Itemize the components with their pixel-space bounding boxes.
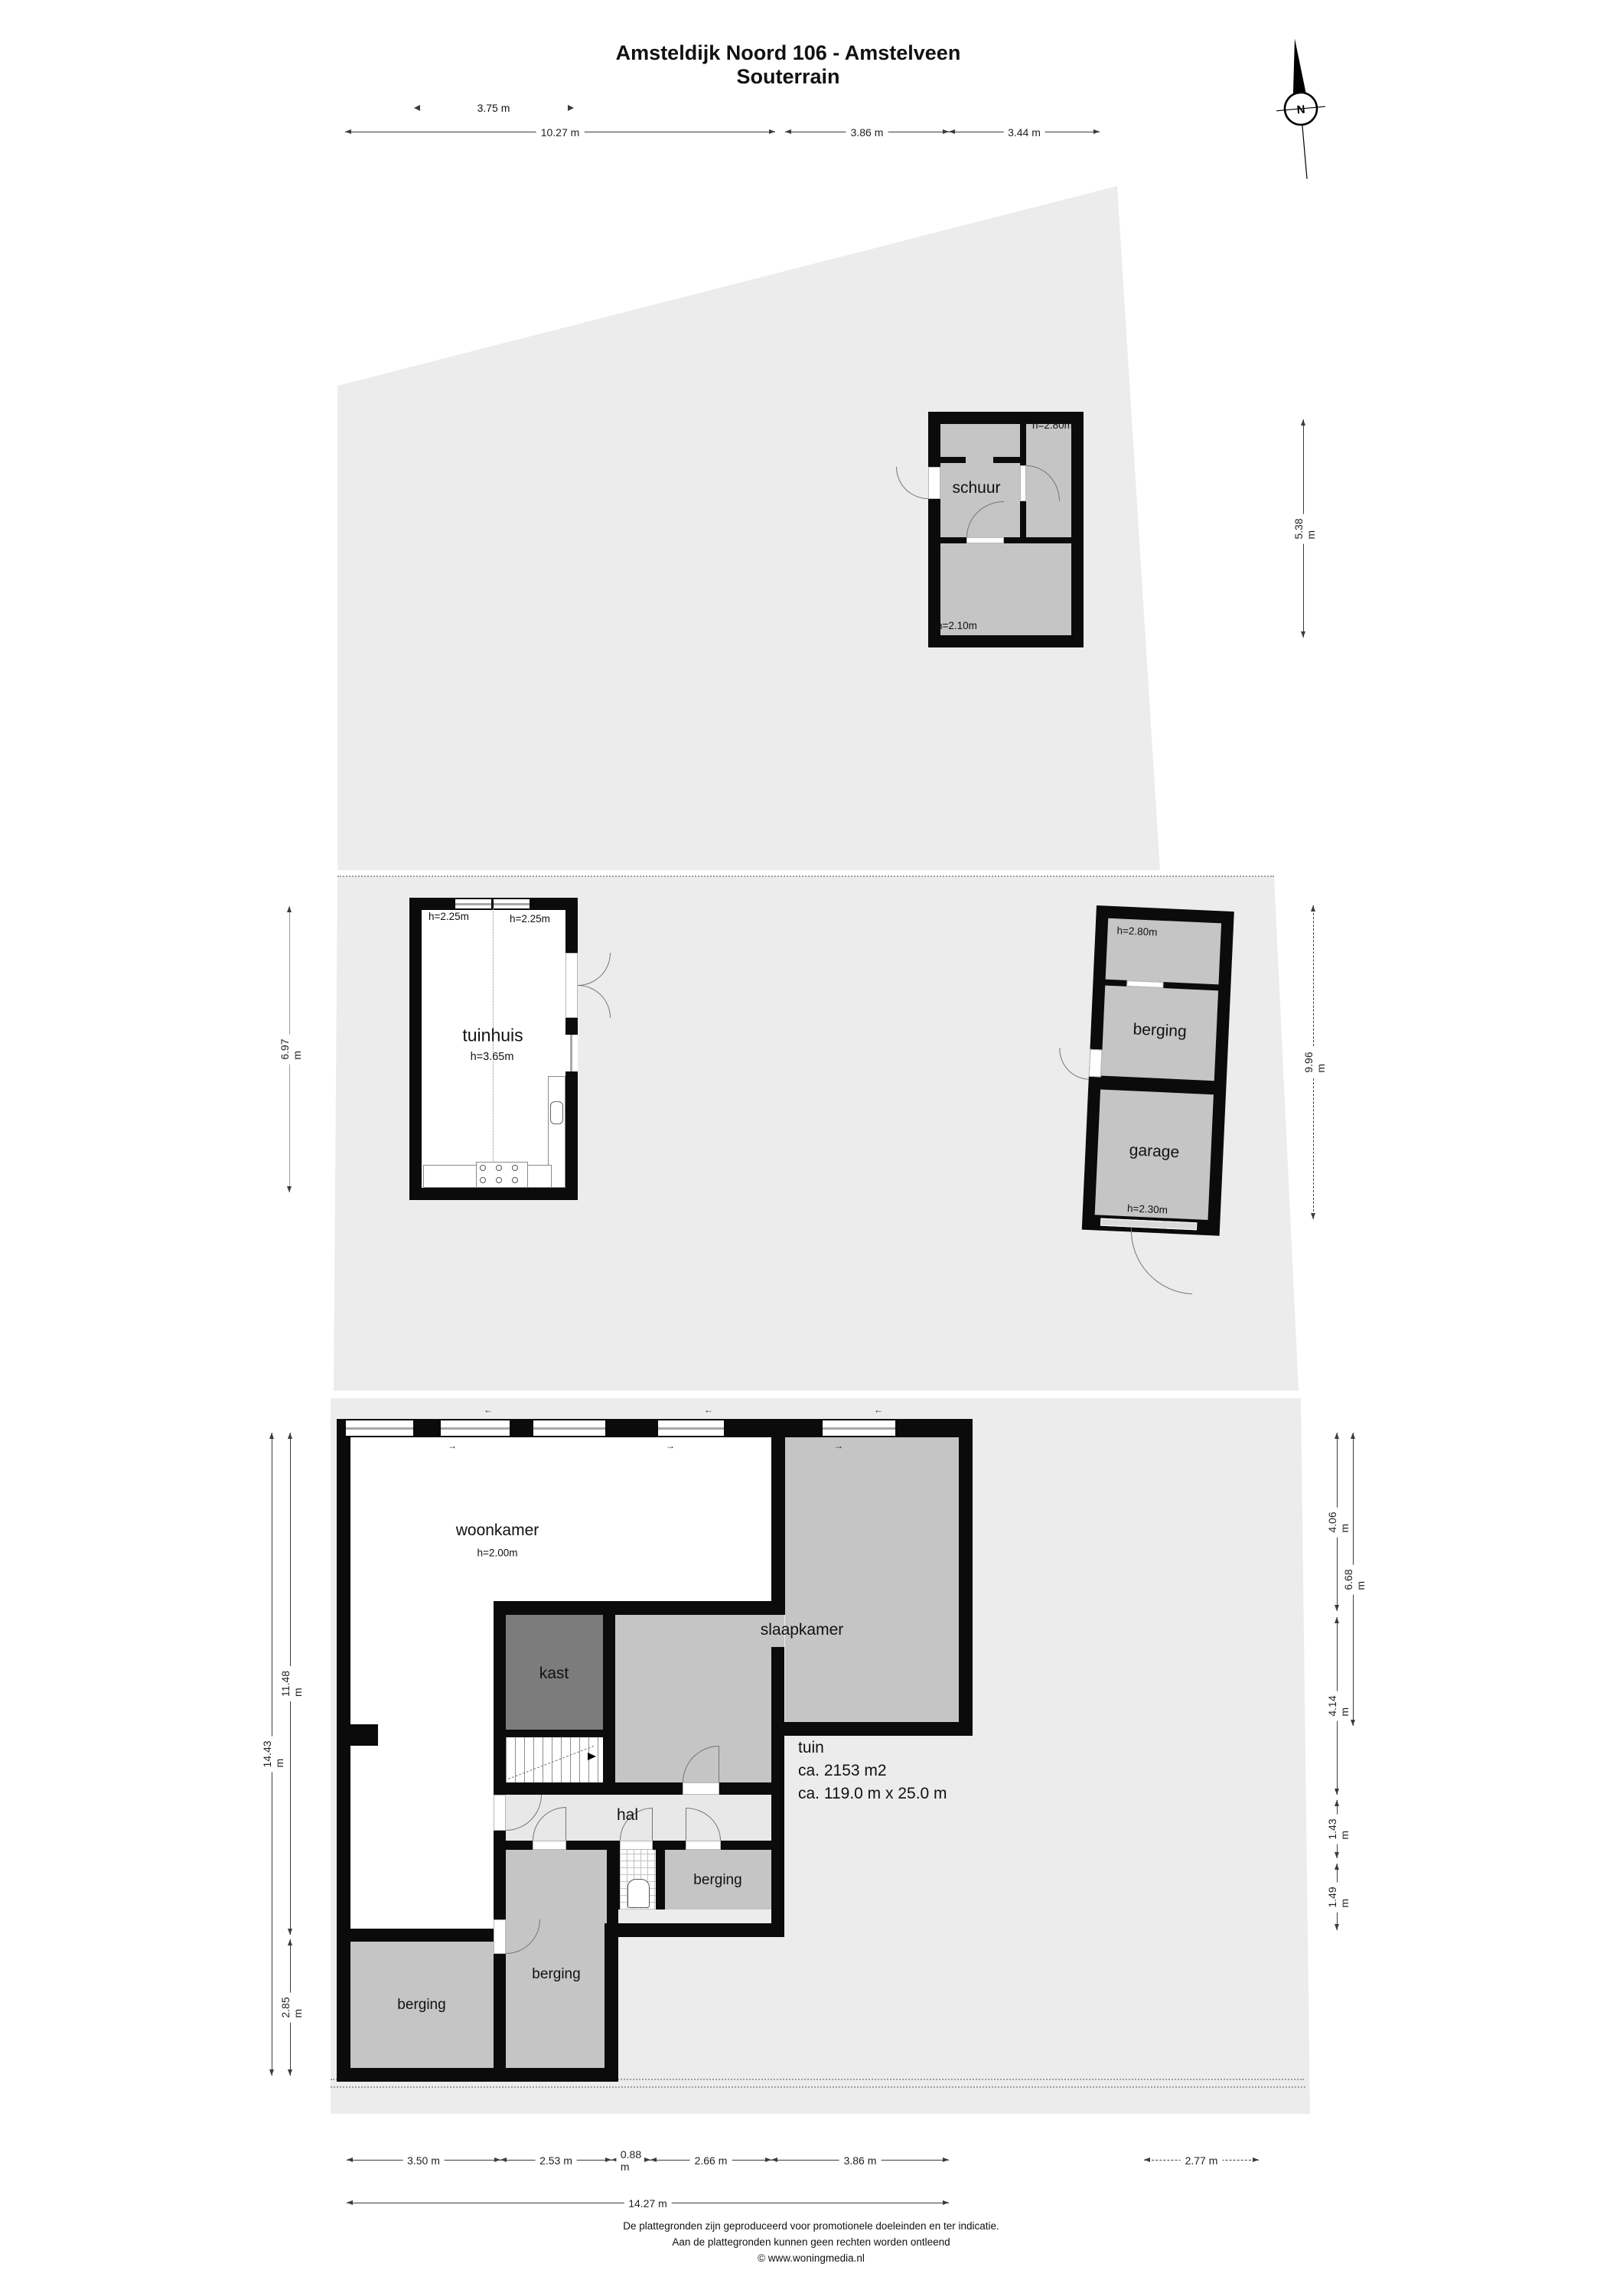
door bbox=[533, 1841, 566, 1850]
dim-top-1: 10.27 m bbox=[345, 132, 775, 132]
building-tuinhuis bbox=[409, 898, 578, 1200]
sink-icon bbox=[550, 1101, 563, 1124]
label-annex-h-top: h=2.80m bbox=[1116, 925, 1158, 938]
compass-north-label: N bbox=[1296, 103, 1305, 117]
door bbox=[620, 1841, 653, 1850]
wall bbox=[337, 1929, 494, 1942]
wall bbox=[566, 1841, 620, 1850]
label-tuinhuis-h-center: h=3.65m bbox=[471, 1051, 514, 1063]
plot-boundary-dotted bbox=[337, 876, 1274, 877]
dim-tick bbox=[414, 105, 420, 111]
tuinhuis-window bbox=[565, 1035, 578, 1071]
wall bbox=[607, 1850, 618, 1923]
dim-top-2: 3.86 m bbox=[785, 132, 949, 132]
plot-boundary-dotted bbox=[331, 2086, 1305, 2088]
dim-house-right-1: 4.06 m bbox=[1337, 1433, 1338, 1611]
footer-line-1: De plattegronden zijn geproduceerd voor … bbox=[429, 2218, 1194, 2234]
dim-bottom-2: 2.53 m bbox=[500, 2160, 611, 2161]
label-tuin-area: ca. 2153 m2 bbox=[798, 1762, 887, 1780]
footer-disclaimer: De plattegronden zijn geproduceerd voor … bbox=[429, 2218, 1194, 2266]
dim-schuur-height: 5.38 m bbox=[1303, 419, 1304, 638]
dim-house-right-2: 6.68 m bbox=[1353, 1433, 1354, 1726]
door bbox=[494, 1795, 506, 1831]
dim-house-right-4: 1.43 m bbox=[1337, 1800, 1338, 1858]
dim-bottom-3: 0.88 m bbox=[611, 2160, 650, 2161]
wall bbox=[337, 2068, 618, 2082]
dim-bottom-right: 2.77 m bbox=[1144, 2160, 1259, 2161]
dim-top-overhang: 3.75 m bbox=[477, 102, 510, 114]
wall bbox=[721, 1841, 784, 1850]
wall bbox=[494, 1954, 506, 2068]
wall bbox=[653, 1841, 686, 1850]
label-schuur: schuur bbox=[952, 479, 1000, 497]
tuinhuis-double-door bbox=[565, 953, 578, 1018]
vent-arrow-icon: → bbox=[834, 1440, 843, 1451]
wall bbox=[771, 1647, 784, 1722]
annex-side-door bbox=[1089, 1049, 1103, 1078]
title-floor: Souterrain bbox=[559, 65, 1018, 89]
label-slaapkamer: slaapkamer bbox=[761, 1621, 844, 1639]
wall bbox=[506, 1730, 603, 1737]
label-hal: hal bbox=[617, 1806, 638, 1825]
toilet-icon bbox=[627, 1879, 650, 1908]
door bbox=[494, 1919, 506, 1954]
dim-bottom-1: 3.50 m bbox=[347, 2160, 500, 2161]
wall bbox=[494, 1601, 506, 1795]
label-tuinhuis: tuinhuis bbox=[462, 1026, 523, 1046]
dim-house-right-5: 1.49 m bbox=[1337, 1864, 1338, 1930]
vent-arrow-icon: ← bbox=[874, 1404, 883, 1415]
label-woonkamer: woonkamer bbox=[456, 1521, 539, 1540]
wall bbox=[494, 1841, 533, 1850]
wall bbox=[771, 1722, 784, 1937]
window bbox=[823, 1420, 895, 1436]
stair-arrow-icon bbox=[588, 1753, 596, 1760]
wall bbox=[603, 1601, 615, 1795]
wall bbox=[605, 1923, 618, 2082]
label-kast: kast bbox=[539, 1665, 569, 1683]
tuinhuis-window bbox=[494, 899, 530, 908]
room-woonkamer bbox=[350, 1601, 494, 1929]
window bbox=[346, 1420, 413, 1436]
label-berging-left: berging bbox=[397, 1997, 445, 2014]
label-garage-height: h=2.30m bbox=[1127, 1202, 1168, 1215]
wall bbox=[494, 1601, 785, 1615]
wall bbox=[605, 1923, 784, 1937]
floorplan-page: Amsteldijk Noord 106 - Amstelveen Souter… bbox=[0, 0, 1623, 2296]
wall bbox=[771, 1437, 785, 1601]
wall bbox=[959, 1419, 973, 1736]
wall bbox=[656, 1850, 665, 1910]
label-tuin: tuin bbox=[798, 1739, 824, 1757]
dim-tick bbox=[568, 105, 574, 111]
vent-arrow-icon: ← bbox=[704, 1404, 713, 1415]
vent-arrow-icon: → bbox=[448, 1440, 457, 1451]
label-schuur-height-right: h=2.80m bbox=[1032, 419, 1073, 431]
building-berging-garage: h=2.80m berging garage h=2.30m bbox=[1082, 905, 1234, 1236]
schuur-interior-door bbox=[1020, 465, 1026, 501]
footer-copyright: © www.woningmedia.nl bbox=[429, 2250, 1194, 2266]
dim-bottom-4: 2.66 m bbox=[650, 2160, 771, 2161]
north-compass-icon: N bbox=[1261, 35, 1341, 185]
schuur-exterior-door bbox=[928, 467, 940, 499]
vent-arrow-icon: → bbox=[666, 1440, 675, 1451]
dim-tuinhuis-left: 6.97 m bbox=[289, 906, 290, 1192]
door bbox=[683, 1782, 719, 1795]
door bbox=[686, 1841, 721, 1850]
dim-bottom-total: 14.27 m bbox=[347, 2203, 949, 2203]
label-annex-berging: berging bbox=[1133, 1020, 1187, 1041]
wall bbox=[784, 1722, 973, 1736]
building-schuur bbox=[928, 412, 1084, 647]
window bbox=[658, 1420, 724, 1436]
dim-house-right-3: 4.14 m bbox=[1337, 1617, 1338, 1795]
label-berging-middle: berging bbox=[532, 1966, 580, 1983]
wall bbox=[494, 1850, 506, 1919]
dim-house-left-lower: 2.85 m bbox=[290, 1939, 291, 2076]
window bbox=[441, 1420, 510, 1436]
dim-bottom-5: 3.86 m bbox=[771, 2160, 949, 2161]
tuinhuis-window bbox=[455, 899, 491, 908]
dim-annex-right: 9.96 m bbox=[1313, 905, 1314, 1219]
dim-house-left-upper: 11.48 m bbox=[290, 1433, 291, 1935]
room-berging-middle bbox=[506, 1850, 607, 2068]
title-address: Amsteldijk Noord 106 - Amstelveen bbox=[559, 41, 1018, 65]
label-woonkamer-height: h=2.00m bbox=[477, 1548, 518, 1559]
dim-top-3: 3.44 m bbox=[949, 132, 1100, 132]
wall bbox=[494, 1782, 683, 1795]
page-title: Amsteldijk Noord 106 - Amstelveen Souter… bbox=[559, 41, 1018, 89]
footer-line-2: Aan de plattegronden kunnen geen rechten… bbox=[429, 2234, 1194, 2250]
dim-house-left-total: 14.43 m bbox=[272, 1433, 272, 2076]
label-schuur-height-bottom: h=2.10m bbox=[937, 620, 977, 631]
wall bbox=[350, 1724, 378, 1746]
wall bbox=[719, 1782, 784, 1795]
wall bbox=[337, 1419, 350, 2082]
room-slaapkamer bbox=[785, 1437, 959, 1722]
room-woonkamer bbox=[350, 1437, 771, 1601]
label-berging-right: berging bbox=[693, 1872, 741, 1889]
schuur-room-door bbox=[966, 537, 1004, 543]
window bbox=[533, 1420, 605, 1436]
label-tuin-size: ca. 119.0 m x 25.0 m bbox=[798, 1785, 947, 1803]
label-tuinhuis-h-left: h=2.25m bbox=[429, 911, 469, 922]
wall bbox=[494, 1831, 506, 1841]
vent-arrow-icon: ← bbox=[484, 1404, 493, 1415]
label-tuinhuis-h-right: h=2.25m bbox=[510, 913, 550, 925]
label-garage: garage bbox=[1129, 1141, 1179, 1162]
